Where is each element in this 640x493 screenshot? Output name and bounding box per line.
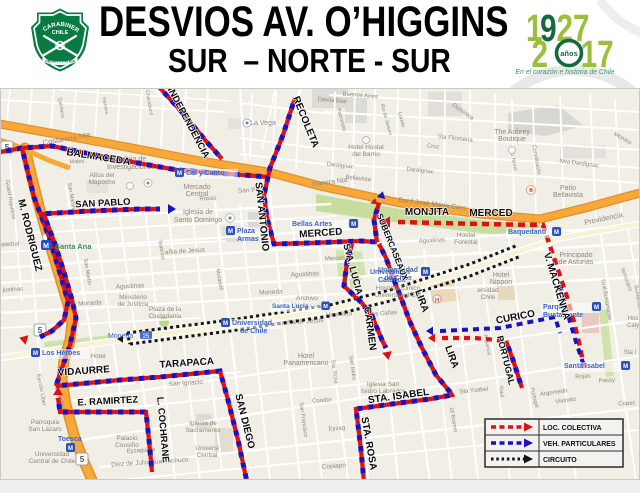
svg-text:de Justicia: de Justicia [118,301,149,308]
svg-text:Caly: Caly [627,323,639,329]
svg-text:25: 25 [143,334,150,340]
svg-text:Boutique: Boutique [498,136,526,143]
svg-text:Plaza: Plaza [237,228,255,235]
svg-text:Plaza de la: Plaza de la [149,306,182,313]
svg-text:Panamericano: Panamericano [283,360,328,367]
svg-text:H: H [435,298,439,304]
svg-text:Toesca: Toesca [58,436,82,443]
svg-text:Principado: Principado [559,252,592,259]
svg-text:años: años [560,49,578,58]
svg-text:Hotel: Hotel [493,272,510,279]
svg-text:justinas: justinas [2,286,24,293]
svg-text:Santa Lucia: Santa Lucia [272,303,309,310]
svg-text:Central: Central [197,452,219,459]
svg-text:Archivo: Archivo [296,295,318,302]
svg-text:Iglesia San: Iglesia San [367,381,400,388]
svg-text:Hos: Hos [628,316,639,322]
svg-text:Chile: Chile [481,294,496,301]
svg-text:Ministerio: Ministerio [119,294,147,301]
svg-text:ORDEN Y PATRIA: ORDEN Y PATRIA [45,60,75,64]
svg-text:del Barrio: del Barrio [352,151,380,158]
svg-text:Sta I: Sta I [624,350,637,356]
svg-text:Central de Chile: Central de Chile [29,458,76,465]
svg-text:M: M [594,305,599,311]
svg-text:Hotel: Hotel [90,353,106,360]
svg-text:Moneda: Moneda [108,333,133,340]
svg-text:Hotel Hostal: Hotel Hostal [348,144,384,151]
svg-text:Hostal: Hostal [457,232,476,239]
svg-text:M: M [33,351,38,357]
svg-text:Santa Isabel: Santa Isabel [564,363,605,370]
svg-text:M: M [423,270,428,276]
svg-text:Los Héroes: Los Héroes [42,350,80,357]
svg-text:Iglesia de: Iglesia de [189,420,217,427]
svg-text:de Chile: de Chile [240,328,267,335]
svg-text:Forestal: Forestal [454,239,478,246]
svg-text:Universidad: Universidad [35,451,70,458]
svg-text:Cal y Canto: Cal y Canto [186,170,225,177]
svg-text:Catedral: Catedral [0,241,19,248]
svg-text:MERCED: MERCED [469,208,512,219]
svg-text:M: M [43,243,49,250]
svg-text:Nippon: Nippon [490,279,512,286]
svg-text:Moneda: Moneda [259,288,283,296]
svg-text:Mapocho: Mapocho [89,179,116,186]
svg-text:ersidad: ersidad [477,287,499,294]
svg-text:Armas: Armas [237,236,259,243]
svg-text:Eyzag: Eyzag [328,425,345,432]
svg-text:En el corazón e historia de Ch: En el corazón e historia de Chile [515,69,614,76]
svg-text:MONJITA: MONJITA [405,207,449,218]
svg-text:Passy: Passy [599,377,616,384]
svg-text:Merced: Merced [325,255,345,262]
svg-text:Hotel: Hotel [298,353,315,360]
svg-text:M: M [351,222,356,228]
svg-text:Mercado: Mercado [183,184,210,191]
svg-text:5: 5 [80,455,85,464]
svg-text:M: M [323,304,328,310]
svg-text:VEH. PARTICULARES: VEH. PARTICULARES [543,441,616,448]
svg-text:M: M [223,321,228,327]
svg-text:CHILE: CHILE [52,30,69,36]
svg-text:Universidad: Universidad [232,320,272,327]
svg-text:Ciudadania: Ciudadania [149,313,182,320]
svg-text:Rojas: Rojas [575,373,591,380]
svg-text:Santa Ana: Santa Ana [55,242,92,251]
svg-text:LOC. COLECTIVA: LOC. COLECTIVA [543,425,602,432]
svg-text:M: M [177,171,182,177]
svg-text:Parroquia: Parroquia [31,419,60,426]
svg-text:Universi: Universi [195,445,218,452]
svg-text:Iglesia de: Iglesia de [183,209,213,216]
svg-text:La Vega: La Vega [250,120,276,127]
svg-text:Palacio: Palacio [116,435,138,442]
svg-text:M: M [68,446,73,452]
svg-text:M: M [554,230,559,236]
svg-text:San Lazaro: San Lazaro [28,426,62,433]
svg-text:Bellavista: Bellavista [553,192,583,199]
svg-text:Baquedano: Baquedano [508,229,546,236]
svg-text:M: M [623,364,628,370]
svg-text:de Asturias: de Asturias [559,259,594,266]
svg-text:Altos del: Altos del [90,172,115,179]
svg-text:M: M [228,229,233,235]
svg-text:Sacramento: Sacramento [185,427,220,434]
svg-text:Moneda: Moneda [78,299,102,307]
svg-text:Copec: Copec [618,400,636,407]
svg-text:Santo Domingo: Santo Domingo [174,217,222,224]
svg-text:Central: Central [186,191,209,198]
svg-text:CIRCUITO: CIRCUITO [543,457,577,464]
svg-text:Patio: Patio [560,185,576,192]
svg-text:The Aubrey: The Aubrey [494,129,530,136]
